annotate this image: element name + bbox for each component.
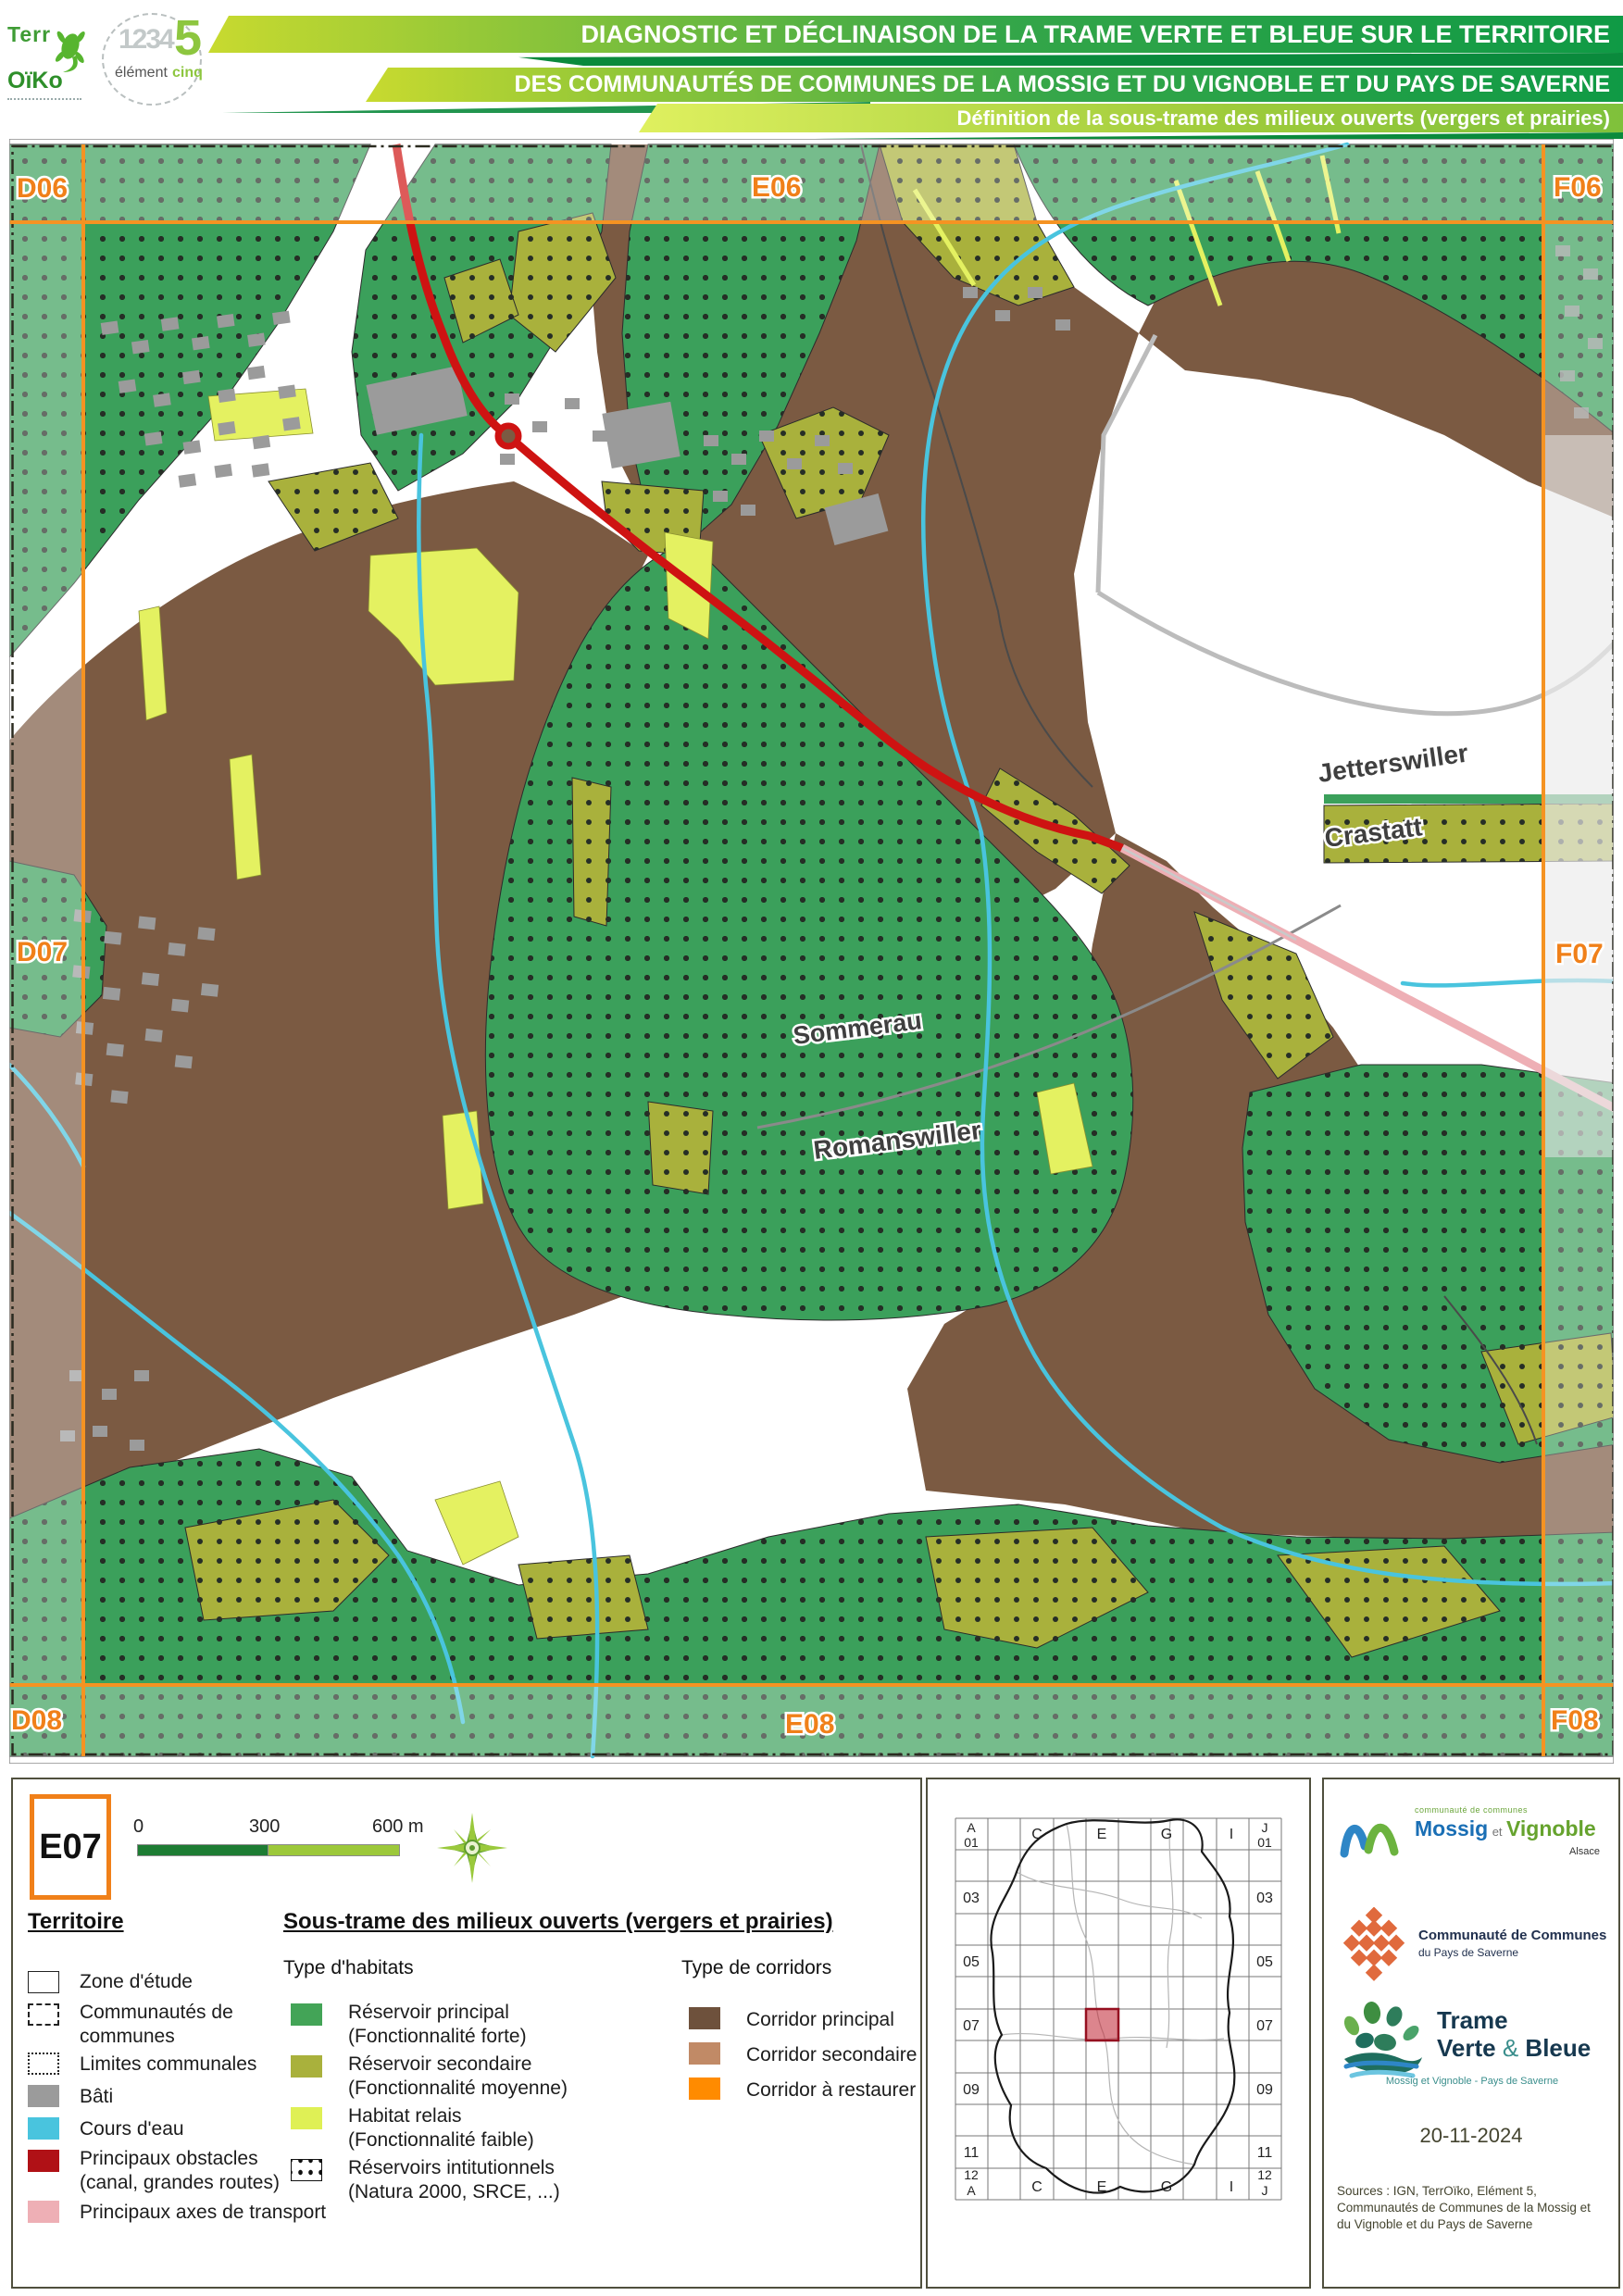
banner-accent-3 xyxy=(815,132,1623,139)
inset-col-g-top: G xyxy=(1161,1827,1172,1842)
elementcinq-five: 5 xyxy=(174,9,202,67)
swatch-axes-transport xyxy=(28,2201,59,2223)
swatch-corridor-secondaire xyxy=(689,2042,720,2065)
tvb-word3: Bleue xyxy=(1525,2034,1591,2062)
compass-rose-icon xyxy=(437,1813,507,1883)
elementcinq-word1: élément xyxy=(115,65,168,81)
tile-id-label: E07 xyxy=(39,1828,102,1867)
scalebar-segment-dark xyxy=(137,1844,268,1856)
habitats-title: Type d'habitats xyxy=(283,1957,414,1979)
terroiko-tagline xyxy=(7,98,81,103)
label-communautes-2: communes xyxy=(80,2026,175,2048)
elementcinq-word2: cinq xyxy=(172,65,203,81)
inset-row-12-right: 12 xyxy=(1257,2167,1272,2182)
label-reservoirs-institutionnels-2: (Natura 2000, SRCE, ...) xyxy=(348,2181,560,2203)
mossig-small-text: communauté de communes xyxy=(1415,1805,1528,1815)
tvb-subtitle: Mossig et Vignoble - Pays de Saverne xyxy=(1333,2076,1611,2087)
tvb-logo: Trame Verte & Bleue Mossig et Vignoble -… xyxy=(1333,2000,1611,2092)
label-obstacles-2: (canal, grandes routes) xyxy=(80,2172,280,2194)
tile-label-d08: D08 xyxy=(11,1705,62,1736)
inset-row-09-right: 09 xyxy=(1256,2082,1273,2098)
label-reservoir-secondaire-2: (Fonctionnalité moyenne) xyxy=(348,2078,568,2100)
inset-territory-outline xyxy=(991,1819,1234,2192)
saverne-line2: du Pays de Saverne xyxy=(1418,1946,1518,1959)
swatch-reservoirs-institutionnels xyxy=(291,2159,322,2181)
swatch-zone-etude xyxy=(28,1971,59,1993)
tile-label-d07: D07 xyxy=(17,937,68,967)
inset-col-c-top: C xyxy=(1031,1827,1042,1842)
inset-commune-lines xyxy=(1002,1820,1224,2165)
title-banner-2: DES COMMUNAUTÉS DE COMMUNES DE LA MOSSIG… xyxy=(366,68,1623,102)
label-cours-eau: Cours d'eau xyxy=(80,2118,184,2140)
swatch-limites xyxy=(28,2053,59,2075)
label-limites: Limites communales xyxy=(80,2053,256,2076)
inset-highlight-cell xyxy=(1086,2009,1118,2040)
inset-col-g-bottom: G xyxy=(1161,2179,1172,2195)
label-reservoir-principal-1: Réservoir principal xyxy=(348,2002,509,2024)
tile-label-f07: F07 xyxy=(1555,939,1604,969)
swatch-reservoir-secondaire xyxy=(291,2055,322,2078)
tile-id-box: E07 xyxy=(30,1794,111,1900)
inset-row-11-right: 11 xyxy=(1257,2145,1273,2161)
scalebar: 0 300 600 m xyxy=(124,1816,430,1863)
subtitle-banner: Définition de la sous-trame des milieux … xyxy=(639,104,1623,132)
inset-row-01-left: 01 xyxy=(964,1835,979,1850)
swatch-obstacles xyxy=(28,2150,59,2172)
inset-corner-bottom-a: A xyxy=(967,2183,976,2198)
mossig-vignoble-logo: communauté de communes Mossig et Vignobl… xyxy=(1337,1803,1605,1868)
mossig-m-icon xyxy=(1339,1809,1400,1859)
inset-col-e-top: E xyxy=(1097,1827,1107,1842)
inset-corner-a: A xyxy=(967,1820,976,1835)
inset-corner-j: J xyxy=(1262,1820,1268,1835)
label-corridor-secondaire: Corridor secondaire xyxy=(746,2044,917,2066)
vignoble-name: Vignoble xyxy=(1506,1816,1596,1841)
label-habitat-relais-2: (Fonctionnalité faible) xyxy=(348,2129,534,2152)
logos-panel: communauté de communes Mossig et Vignobl… xyxy=(1322,1778,1620,2289)
tile-label-e08: E08 xyxy=(785,1709,834,1740)
scalebar-segment-light xyxy=(268,1844,400,1856)
label-corridor-principal: Corridor principal xyxy=(746,2009,894,2031)
tvb-word1: Trame xyxy=(1437,2007,1508,2034)
mossig-et: et xyxy=(1492,1825,1503,1839)
inset-row-07-right: 07 xyxy=(1256,2018,1273,2034)
inset-row-03-left: 03 xyxy=(963,1890,980,1906)
elementcinq-logo: 1234 5 élément cinq xyxy=(94,7,233,109)
inset-col-c-bottom: C xyxy=(1031,2179,1042,2195)
elementcinq-digits: 1234 xyxy=(119,24,173,56)
tile-label-f06: F06 xyxy=(1554,172,1602,203)
mossig-name: Mossig xyxy=(1415,1816,1488,1841)
label-zone-etude: Zone d'étude xyxy=(80,1971,193,1993)
tvb-ampersand: & xyxy=(1503,2034,1518,2062)
inset-row-12-left: 12 xyxy=(964,2167,979,2182)
swatch-reservoir-principal xyxy=(291,2003,322,2026)
pays-saverne-logo: Communauté de Communes du Pays de Savern… xyxy=(1337,1907,1611,1981)
locator-inset-map: A 01 J 01 03 03 05 05 07 07 09 09 11 11 … xyxy=(928,1779,1305,2283)
main-map: D06 E06 F06 D07 F07 D08 E08 F08 Jettersw… xyxy=(9,139,1614,1764)
swatch-corridor-restaurer xyxy=(689,2078,720,2100)
title-banner-1: DIAGNOSTIC ET DÉCLINAISON DE LA TRAME VE… xyxy=(208,16,1623,53)
label-corridor-restaurer: Corridor à restaurer xyxy=(746,2079,916,2102)
inset-col-i-bottom: I xyxy=(1230,2179,1233,2195)
tile-label-f08: F08 xyxy=(1551,1705,1599,1736)
roundabout-icon xyxy=(498,426,518,446)
inset-row-03-right: 03 xyxy=(1256,1890,1273,1906)
label-bati: Bâti xyxy=(80,2086,113,2108)
tile-label-e06: E06 xyxy=(752,172,801,203)
label-axes-transport: Principaux axes de transport xyxy=(80,2202,326,2224)
farm-blob-2 xyxy=(602,402,680,468)
tile-label-d06: D06 xyxy=(17,173,68,204)
corridors-title: Type de corridors xyxy=(681,1957,831,1979)
header: Terr OïKo 1234 5 élément cinq DIAGNOSTIC… xyxy=(0,0,1623,139)
map-sheet-page: { "header": { "banner_line1": "DIAGNOSTI… xyxy=(0,0,1623,2296)
scale-tick-0: 0 xyxy=(133,1816,144,1838)
date-label: 20-11-2024 xyxy=(1324,2124,1618,2148)
saverne-diamonds-icon xyxy=(1341,1907,1409,1985)
inset-row-05-right: 05 xyxy=(1256,1954,1273,1970)
inset-row-07-left: 07 xyxy=(963,2018,980,2034)
label-obstacles-1: Principaux obstacles xyxy=(80,2148,258,2170)
inset-row-05-left: 05 xyxy=(963,1954,980,1970)
swatch-bati xyxy=(28,2085,59,2107)
sources-text: Sources : IGN, TerrOïko, Elément 5, Comm… xyxy=(1337,2183,1607,2234)
swatch-communautes xyxy=(28,2003,59,2026)
inset-row-09-left: 09 xyxy=(963,2082,980,2098)
label-reservoir-principal-2: (Fonctionnalité forte) xyxy=(348,2026,527,2048)
scale-tick-600: 600 m xyxy=(372,1816,424,1838)
locator-inset-panel: A 01 J 01 03 03 05 05 07 07 09 09 11 11 … xyxy=(926,1778,1311,2289)
label-communautes-1: Communautés de xyxy=(80,2002,233,2024)
mossig-region: Alsace xyxy=(1415,1846,1600,1857)
soustrame-title: Sous-trame des milieux ouverts (vergers … xyxy=(283,1909,833,1935)
swatch-habitat-relais xyxy=(291,2107,322,2129)
legend-panel: E07 0 300 600 m Territoire Zone d'étude … xyxy=(11,1778,922,2289)
label-reservoir-secondaire-1: Réservoir secondaire xyxy=(348,2053,531,2076)
banner-accent-1 xyxy=(518,53,1623,66)
inset-row-11-left: 11 xyxy=(964,2145,980,2161)
label-habitat-relais-1: Habitat relais xyxy=(348,2105,462,2128)
territoire-title: Territoire xyxy=(28,1909,124,1935)
inset-corner-bottom-j: J xyxy=(1262,2183,1268,2198)
inset-col-e-bottom: E xyxy=(1097,2179,1107,2195)
terroiko-logo: Terr OïKo xyxy=(7,24,93,117)
inset-row-01-right: 01 xyxy=(1257,1835,1272,1850)
saverne-line1: Communauté de Communes xyxy=(1418,1928,1606,1943)
scale-tick-300: 300 xyxy=(249,1816,280,1838)
inset-col-i-top: I xyxy=(1230,1827,1233,1842)
tvb-word2: Verte xyxy=(1437,2034,1496,2062)
tvb-paw-icon xyxy=(1337,2002,1426,2085)
lizard-icon xyxy=(48,26,93,74)
label-reservoirs-institutionnels-1: Réservoirs intitutionnels xyxy=(348,2157,555,2179)
swatch-corridor-principal xyxy=(689,2007,720,2029)
swatch-cours-eau xyxy=(28,2117,59,2140)
